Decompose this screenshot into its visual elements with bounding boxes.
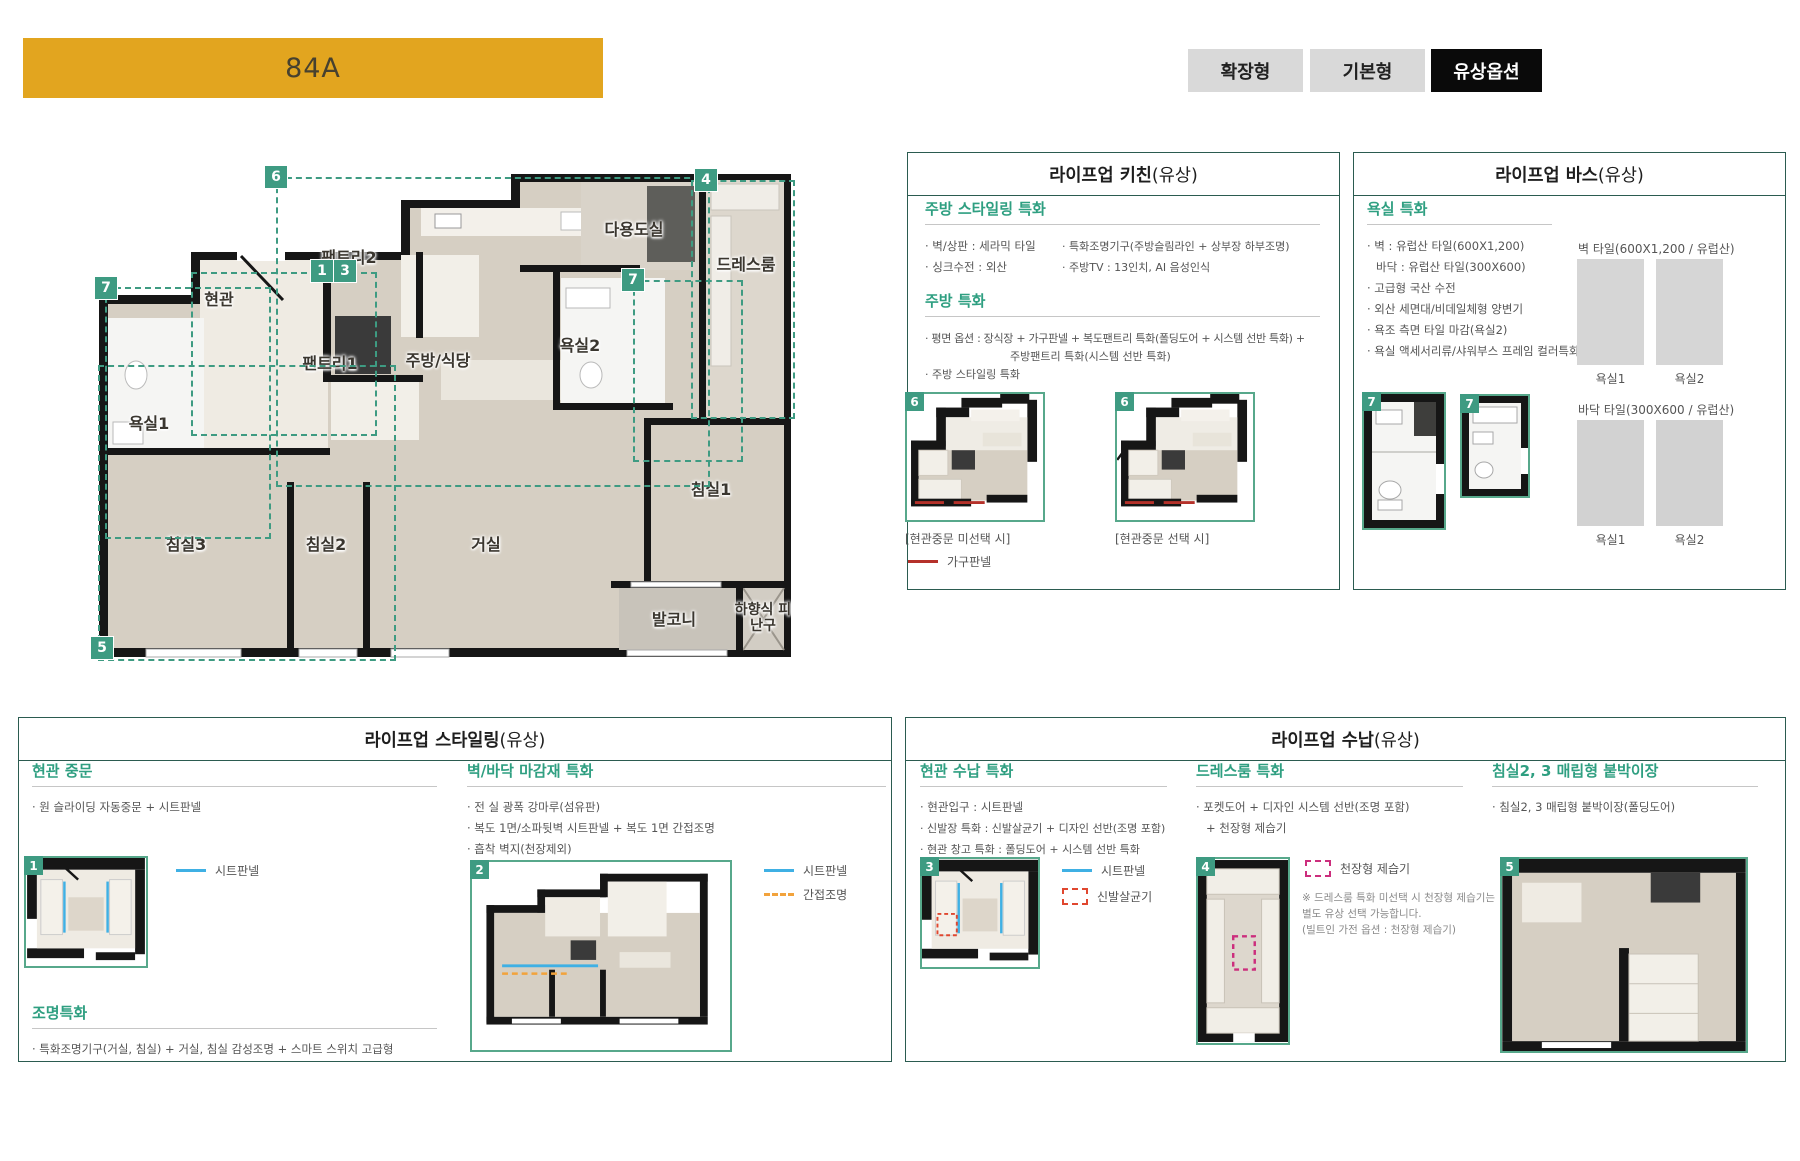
legend-label: 신발살균기 <box>1097 888 1152 905</box>
kitchen-special-heading: 주방 특화 <box>925 290 985 311</box>
blue-line-swatch <box>176 869 206 872</box>
divider <box>1196 786 1463 787</box>
bath1-mini-plan <box>1364 394 1444 528</box>
bath2-thumbnail: 7 <box>1460 394 1530 498</box>
entrance-storage-heading: 현관 수납 특화 <box>920 760 1013 781</box>
bath1-thumbnail: 7 <box>1362 392 1446 530</box>
legend-label: 간접조명 <box>803 886 847 903</box>
wall-tile-label-1: 욕실1 <box>1577 370 1644 387</box>
floor-tile-label-1: 욕실1 <box>1577 531 1644 548</box>
legend-label: 시트판넬 <box>215 862 259 879</box>
thumbnail-badge: 3 <box>920 857 939 876</box>
zone-5-bedrooms <box>98 365 396 661</box>
bath-line: · 욕실 액세서리류/샤워부스 프레임 컬러특화 <box>1367 343 1580 359</box>
floor-tile-caption: 바닥 타일(300X600 / 유럽산) <box>1578 401 1734 418</box>
dressroom-heading: 드레스룸 특화 <box>1196 760 1284 781</box>
zone-badge-7-right: 7 <box>622 269 644 291</box>
bedroom-closet-heading: 침실2, 3 매립형 붙박이장 <box>1492 760 1658 781</box>
tab-extended-label: 확장형 <box>1221 58 1271 84</box>
floor-tile-swatch-bath1 <box>1577 420 1644 526</box>
storage-line: · 포켓도어 + 디자인 시스템 선반(조명 포함) <box>1196 799 1409 815</box>
entrance-door-heading: 현관 중문 <box>32 760 92 781</box>
room-label-escape-hatch: 하향식 피난구 <box>734 602 792 634</box>
dressroom-note-line: (빌트인 가전 옵션 : 천장형 제습기) <box>1302 922 1456 937</box>
blue-line-swatch <box>1062 869 1092 872</box>
divider <box>467 786 886 787</box>
unit-type-label: 84A <box>285 53 341 84</box>
room-label-living: 거실 <box>471 536 500 554</box>
entrance-storage-thumbnail: 3 <box>920 857 1040 969</box>
panel-kitchen-title: 라이프업 키친(유상) <box>908 153 1339 196</box>
zone-badge-5: 5 <box>91 637 113 659</box>
page: 84A 확장형 기본형 유상옵션 <box>0 0 1800 1161</box>
panel-lifeup-styling: 라이프업 스타일링(유상) <box>18 717 892 1062</box>
floor-tile-swatch-bath2 <box>1656 420 1723 526</box>
panel-styling-title-text: 라이프업 스타일링 <box>365 727 500 752</box>
thumbnail-badge: 4 <box>1196 857 1215 876</box>
dressroom-thumbnail: 4 <box>1196 857 1290 1045</box>
kitchen-line: · 싱크수전 : 외산 <box>925 259 1007 275</box>
dressroom-note-line: 별도 유상 선택 가능합니다. <box>1302 906 1422 921</box>
thumbnail-badge: 6 <box>905 392 924 411</box>
tab-basic-label: 기본형 <box>1343 58 1393 84</box>
floor-plan: 6 4 1 3 7 7 5 현관 팬트리2 팬트리1 주방/식당 다용도실 욕실… <box>91 160 796 660</box>
red-dashed-box-swatch <box>1062 888 1088 905</box>
kitchen-line: · 주방TV : 13인치, AI 음성인식 <box>1062 259 1210 275</box>
zone-badge-4: 4 <box>695 169 717 191</box>
bath-line: · 벽 : 유럽산 타일(600X1,200) <box>1367 238 1524 254</box>
bath-line: 바닥 : 유럽산 타일(300X600) <box>1376 259 1526 275</box>
legend-furniture-panel: 가구판넬 <box>908 553 991 570</box>
zone-badge-3: 3 <box>334 260 356 282</box>
bath-line: · 욕조 측면 타일 마감(욕실2) <box>1367 322 1507 338</box>
panel-kitchen-title-text: 라이프업 키친 <box>1049 162 1152 187</box>
thumbnail-badge: 2 <box>470 860 489 879</box>
red-line-swatch <box>908 560 938 563</box>
zone-badge-1: 1 <box>311 260 333 282</box>
thumbnail-badge: 1 <box>24 856 43 875</box>
storage-line: · 현관입구 : 시트판넬 <box>920 799 1023 815</box>
legend-sheet-panel-2: 시트판넬 <box>764 862 847 879</box>
styling-line: · 전 실 광폭 강마루(섬유판) <box>467 799 600 815</box>
zone-badge-7-left: 7 <box>95 277 117 299</box>
pink-dashed-box-swatch <box>1305 860 1331 877</box>
wall-tile-caption: 벽 타일(600X1,200 / 유럽산) <box>1578 240 1735 257</box>
kitchen-thumbnail-with-door: 6 <box>1115 392 1255 522</box>
bedroom-closet-thumbnail: 5 <box>1500 857 1748 1053</box>
finish-mini-plan <box>472 862 730 1050</box>
kitchen-styling-heading: 주방 스타일링 특화 <box>925 198 1046 219</box>
divider <box>925 224 1320 225</box>
kitchen-line: 주방팬트리 특화(시스템 선반 특화) <box>1010 348 1171 364</box>
dressroom-mini-plan <box>1198 859 1288 1043</box>
panel-bath-title: 라이프업 바스(유상) <box>1354 153 1785 196</box>
thumbnail-badge: 5 <box>1500 857 1519 876</box>
tab-basic[interactable]: 기본형 <box>1310 49 1425 92</box>
legend-indirect-light: 간접조명 <box>764 886 847 903</box>
legend-sheet-panel-3: 시트판넬 <box>1062 862 1145 879</box>
panel-kitchen-title-suffix: (유상) <box>1152 162 1198 187</box>
legend-label: 시트판넬 <box>803 862 847 879</box>
zone-badge-6: 6 <box>265 166 287 188</box>
divider <box>1367 224 1552 225</box>
bath-line: · 외산 세면대/비데일체형 양변기 <box>1367 301 1523 317</box>
kitchen-line: · 주방 스타일링 특화 <box>925 366 1020 382</box>
kitchen-mini-plan <box>907 394 1043 520</box>
orange-dashed-swatch <box>764 893 794 896</box>
unit-type-banner: 84A <box>23 38 603 98</box>
panel-storage-title-text: 라이프업 수납 <box>1271 727 1374 752</box>
divider <box>32 786 437 787</box>
kitchen-line: · 특화조명기구(주방슬림라인 + 상부장 하부조명) <box>1062 238 1290 254</box>
bath-line: · 고급형 국산 수전 <box>1367 280 1456 296</box>
kitchen-thumb-caption-2: [현관중문 선택 시] <box>1115 530 1209 547</box>
thumbnail-badge: 7 <box>1362 392 1381 411</box>
kitchen-thumb-caption-1: [현관중문 미선택 시] <box>905 530 1010 547</box>
entrance-mini-plan <box>26 858 146 966</box>
panel-storage-title: 라이프업 수납(유상) <box>906 718 1785 761</box>
styling-line: · 특화조명기구(거실, 침실) + 거실, 침실 감성조명 + 스마트 스위치… <box>32 1041 393 1057</box>
legend-ceiling-dehumidifier: 천장형 제습기 <box>1305 860 1410 877</box>
room-label-balcony: 발코니 <box>652 611 696 629</box>
zone-7-bath2 <box>633 280 743 462</box>
blue-line-swatch <box>764 869 794 872</box>
entrance-door-thumbnail: 1 <box>24 856 148 968</box>
bedroom-mini-plan <box>1502 859 1746 1051</box>
legend-shoe-sterilizer: 신발살균기 <box>1062 888 1152 905</box>
storage-line: · 신발장 특화 : 신발살균기 + 디자인 선반(조명 포함) <box>920 820 1165 836</box>
wall-tile-swatch-bath2 <box>1656 259 1723 365</box>
thumbnail-badge: 7 <box>1460 394 1479 413</box>
storage-line: · 현관 창고 특화 : 폴딩도어 + 시스템 선반 특화 <box>920 841 1140 857</box>
tab-paid-option[interactable]: 유상옵션 <box>1431 49 1542 92</box>
legend-label: 시트판넬 <box>1101 862 1145 879</box>
kitchen-line: · 벽/상판 : 세라믹 타일 <box>925 238 1036 254</box>
styling-line: · 흡착 벽지(천장제외) <box>467 841 572 857</box>
storage-line: + 천장형 제습기 <box>1206 820 1286 836</box>
legend-sheet-panel: 시트판넬 <box>176 862 259 879</box>
styling-line: · 원 슬라이딩 자동중문 + 시트판넬 <box>32 799 201 815</box>
kitchen-mini-plan <box>1117 394 1253 520</box>
panel-styling-title: 라이프업 스타일링(유상) <box>19 718 891 761</box>
panel-storage-title-suffix: (유상) <box>1374 727 1420 752</box>
panel-styling-title-suffix: (유상) <box>500 727 546 752</box>
legend-label: 가구판넬 <box>947 553 991 570</box>
panel-bath-title-text: 라이프업 바스 <box>1495 162 1598 187</box>
floor-tile-label-2: 욕실2 <box>1656 531 1723 548</box>
divider <box>32 1028 437 1029</box>
kitchen-thumbnail-no-door: 6 <box>905 392 1045 522</box>
legend-label: 천장형 제습기 <box>1340 860 1410 877</box>
dressroom-note-line: ※ 드레스룸 특화 미선택 시 천장형 제습기는 <box>1302 890 1495 905</box>
finish-thumbnail: 2 <box>470 860 732 1052</box>
lighting-heading: 조명특화 <box>32 1002 87 1023</box>
kitchen-line: · 평면 옵션 : 장식장 + 가구판넬 + 복도팬트리 특화(폴딩도어 + 시… <box>925 330 1305 346</box>
styling-line: · 복도 1면/소파뒷벽 시트판넬 + 복도 1면 간접조명 <box>467 820 715 836</box>
tab-paid-option-label: 유상옵션 <box>1453 58 1519 84</box>
bath-heading: 욕실 특화 <box>1367 198 1427 219</box>
storage-line: · 침실2, 3 매립형 붙박이장(폴딩도어) <box>1492 799 1675 815</box>
divider <box>1492 786 1758 787</box>
divider <box>925 316 1320 317</box>
divider <box>920 786 1167 787</box>
wall-tile-swatch-bath1 <box>1577 259 1644 365</box>
panel-bath-title-suffix: (유상) <box>1598 162 1644 187</box>
thumbnail-badge: 6 <box>1115 392 1134 411</box>
wall-tile-label-2: 욕실2 <box>1656 370 1723 387</box>
tab-extended[interactable]: 확장형 <box>1188 49 1303 92</box>
entrance-storage-mini-plan <box>922 859 1038 967</box>
finish-heading: 벽/바닥 마감재 특화 <box>467 760 593 781</box>
